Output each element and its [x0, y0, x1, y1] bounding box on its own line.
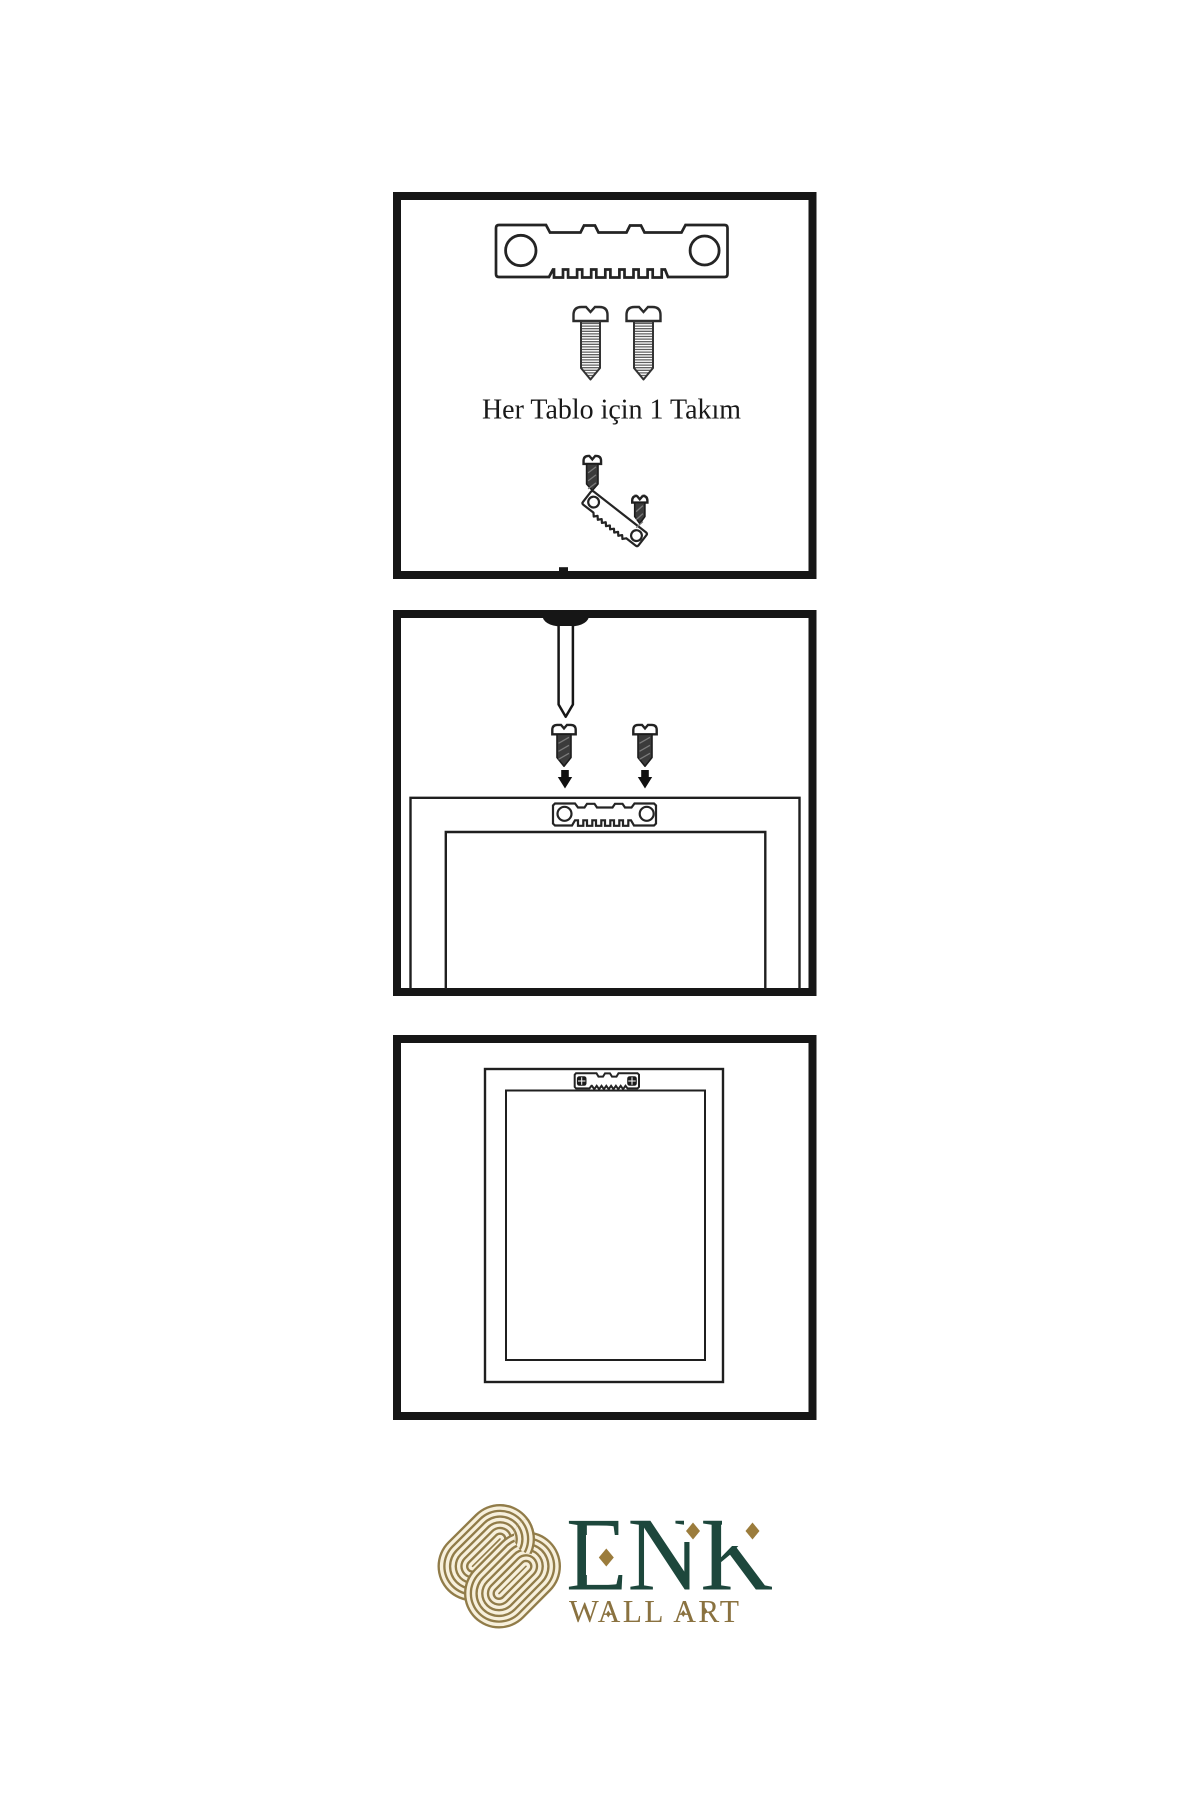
svg-text:Her Tablo için 1 Takım: Her Tablo için 1 Takım — [482, 394, 741, 426]
svg-text:WALL ART: WALL ART — [569, 1594, 739, 1629]
